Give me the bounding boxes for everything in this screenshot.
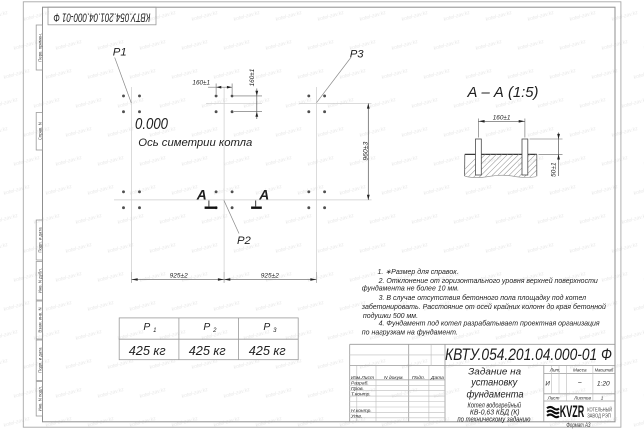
svg-text:Лист: Лист [547,396,560,401]
svg-text:Справ. N: Справ. N [37,122,42,140]
svg-text:Подп. и дата: Подп. и дата [37,227,42,253]
svg-text:КВТУ.054.201.04.000-01 Ф: КВТУ.054.201.04.000-01 Ф [445,345,612,364]
svg-text:1. ∗Размер для справок.: 1. ∗Размер для справок. [378,268,459,276]
svg-text:160±1: 160±1 [249,68,256,86]
svg-text:KVZR: KVZR [560,403,585,421]
svg-text:А – А (1:5): А – А (1:5) [467,84,539,101]
svg-text:Инв. N подл.: Инв. N подл. [37,386,42,411]
svg-text:Задание на: Задание на [468,367,521,378]
svg-text:Масштаб: Масштаб [595,367,614,372]
svg-text:Утв.: Утв. [351,414,362,420]
svg-text:И: И [545,380,550,387]
svg-text:425 кг: 425 кг [249,343,287,358]
svg-text:Т.контр.: Т.контр. [351,392,371,398]
svg-text:Перв. примен.: Перв. примен. [37,33,42,62]
svg-text:забетонировать. Расстояние от: забетонировать. Расстояние от осей крайн… [361,303,606,311]
svg-text:Дата: Дата [430,375,444,381]
svg-text:установку: установку [470,378,518,389]
svg-text:925±2: 925±2 [261,272,279,279]
svg-text:960±3: 960±3 [362,142,369,161]
svg-text:Разраб.: Разраб. [351,381,369,387]
svg-text:Подп.: Подп. [412,375,425,381]
svg-text:Подп. и дата: Подп. и дата [37,347,42,373]
svg-text:4. Фундамент под котел разраба: 4. Фундамент под котел разрабатывает про… [379,320,600,328]
svg-text:Р2: Р2 [237,235,252,247]
svg-text:подушки 500 мм.: подушки 500 мм. [363,312,418,320]
svg-text:Взам. инв. N: Взам. инв. N [37,307,42,332]
svg-text:Изм.Лист: Изм.Лист [351,375,374,381]
svg-text:N докум.: N докум. [384,375,404,381]
svg-text:425 кг: 425 кг [129,343,167,358]
svg-text:50±1: 50±1 [551,162,558,177]
svg-text:по техническому заданию: по техническому заданию [457,414,530,423]
svg-text:–: – [577,379,582,386]
svg-text:фундамента: фундамента [467,388,524,400]
svg-text:Р3: Р3 [350,48,365,60]
svg-text:Лит.: Лит. [549,367,561,372]
svg-text:Ось симетрии котла: Ось симетрии котла [138,137,252,149]
svg-text:фундамента не более 10 мм.: фундамента не более 10 мм. [362,285,459,293]
svg-text:Пров.: Пров. [351,386,364,392]
svg-text:1:20: 1:20 [597,381,610,388]
svg-text:925±2: 925±2 [170,272,188,279]
svg-text:425 кг: 425 кг [189,343,227,358]
svg-text:3. В случае отсутствия бетонно: 3. В случае отсутствия бетонного пола пл… [379,294,587,302]
svg-text:КВТУ.054.201.04.000-01 Ф: КВТУ.054.201.04.000-01 Ф [53,11,150,25]
svg-text:А: А [196,188,207,203]
svg-text:Листов: Листов [573,396,591,401]
svg-text:ЗАВОД РЭП: ЗАВОД РЭП [587,413,611,419]
svg-text:Масса: Масса [573,367,587,372]
svg-text:по нагрузкам на фундамент.: по нагрузкам на фундамент. [362,329,458,337]
svg-text:А: А [258,188,269,203]
svg-text:Р1: Р1 [113,47,127,59]
svg-text:160±1: 160±1 [192,80,210,87]
svg-text:Инв. N дубл.: Инв. N дубл. [37,268,42,293]
svg-text:Формат А3: Формат А3 [566,423,590,429]
svg-text:2. Отклонение от горизонтально: 2. Отклонение от горизонтального уровня … [378,277,598,285]
svg-text:160±1: 160±1 [493,114,511,121]
svg-text:0.000: 0.000 [135,116,168,133]
svg-text:Н.контр.: Н.контр. [351,408,372,414]
svg-text:1: 1 [601,396,604,401]
